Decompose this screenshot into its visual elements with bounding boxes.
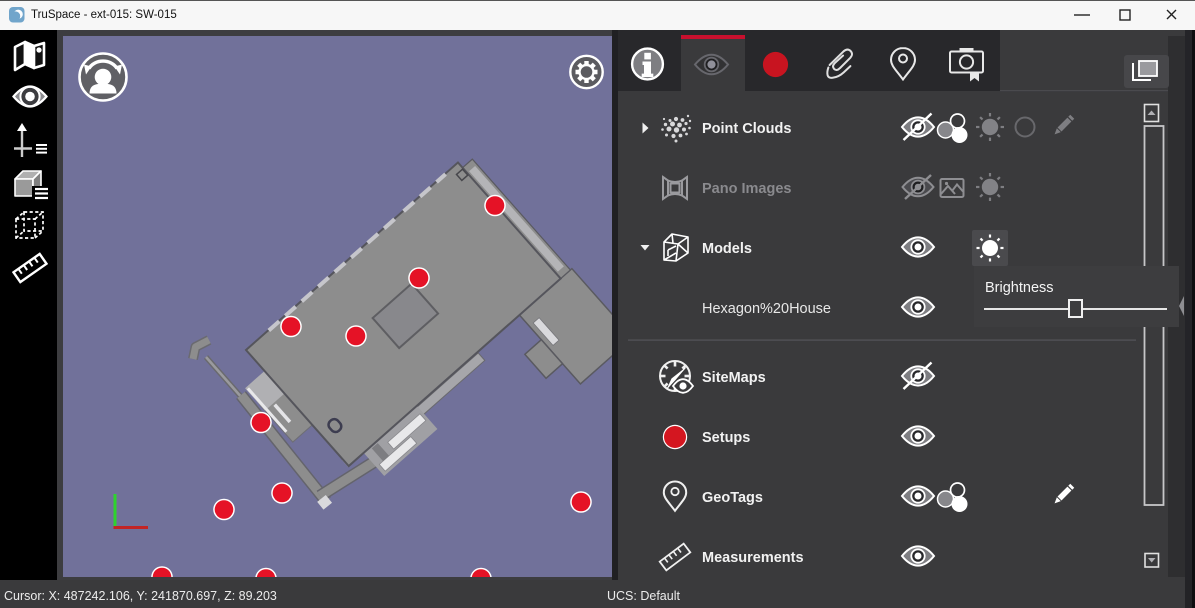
svg-text:Point Clouds: Point Clouds	[702, 121, 791, 137]
svg-text:Pano Images: Pano Images	[702, 181, 791, 197]
svg-text:Brightness: Brightness	[985, 280, 1054, 296]
svg-text:Hexagon%20House: Hexagon%20House	[702, 301, 831, 317]
svg-text:Measurements: Measurements	[702, 550, 804, 566]
svg-text:Setups: Setups	[702, 430, 750, 446]
svg-text:Models: Models	[702, 241, 752, 257]
svg-text:GeoTags: GeoTags	[702, 490, 763, 506]
svg-text:SiteMaps: SiteMaps	[702, 370, 766, 386]
